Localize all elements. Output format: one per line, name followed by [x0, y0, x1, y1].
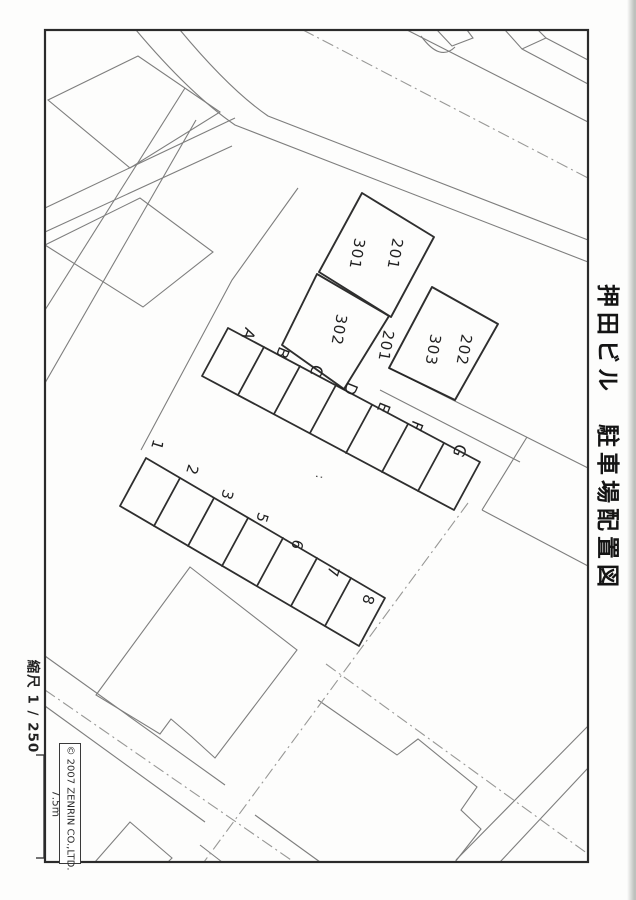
- copyright-text: © 2007 ZENRIN CO.,LTD.: [64, 746, 77, 862]
- centerline-bottom-west: [45, 690, 294, 862]
- stall-divider: [418, 443, 444, 491]
- large-building-southwest: [96, 567, 297, 758]
- stall-divider: [291, 558, 317, 606]
- scale-label: 縮尺 1 / 250: [28, 646, 45, 768]
- stall-divider: [154, 478, 180, 526]
- block-north-boundary: [136, 30, 588, 262]
- corner-building-1: [437, 30, 473, 46]
- stall-divider: [188, 498, 214, 546]
- stray-dots-mark: :: [312, 469, 328, 485]
- building-topleft-2: [45, 198, 213, 307]
- bottom-road-edge-3: [255, 815, 320, 862]
- bottomright-line-2: [500, 768, 588, 862]
- road-edge-north: [407, 30, 588, 122]
- left-road-edge-1: [45, 88, 185, 310]
- block-west-boundary: [141, 188, 298, 450]
- bottom-road-edge-4: [200, 845, 222, 862]
- building-topleft-1: [48, 56, 220, 168]
- copyright-box: © 2007 ZENRIN CO.,LTD.: [59, 743, 81, 864]
- centerline-bottom-east: [326, 664, 588, 854]
- small-building-bottomleft: [95, 822, 172, 862]
- parking-strip-numbers-outline: [120, 458, 385, 646]
- scan-edge-shadow: [627, 0, 636, 900]
- road-edge-south-curved: [180, 30, 588, 240]
- map-frame: [45, 30, 588, 862]
- side-road-line-1: [45, 118, 235, 208]
- road-centerlines: [45, 30, 588, 862]
- scale-bar: [36, 755, 44, 858]
- survey-roads: [45, 30, 588, 862]
- right-building-south-edge: [482, 510, 588, 566]
- building-unit-201-301: [319, 193, 434, 317]
- stall-divider: [238, 347, 264, 395]
- right-building-west-edge: [482, 437, 527, 510]
- building-unit-202-303: [389, 287, 498, 400]
- page-title: 押田ビル 駐車場配置図: [597, 268, 627, 608]
- scanned-parking-map-page: { "header": { "title": "押田ビル 駐車場配置図" }, …: [0, 0, 636, 900]
- parking-strips-hand: [120, 328, 480, 646]
- notched-building-bottom: [318, 700, 481, 862]
- bottomright-line-1: [456, 726, 588, 860]
- corner-line-2: [546, 38, 588, 60]
- map-canvas: [0, 0, 636, 900]
- stall-divider: [346, 405, 372, 453]
- stall-divider: [257, 538, 283, 586]
- stall-divider: [310, 385, 336, 433]
- corner-building-2: [505, 30, 546, 49]
- stall-divider: [274, 366, 300, 414]
- stall-divider: [222, 518, 248, 566]
